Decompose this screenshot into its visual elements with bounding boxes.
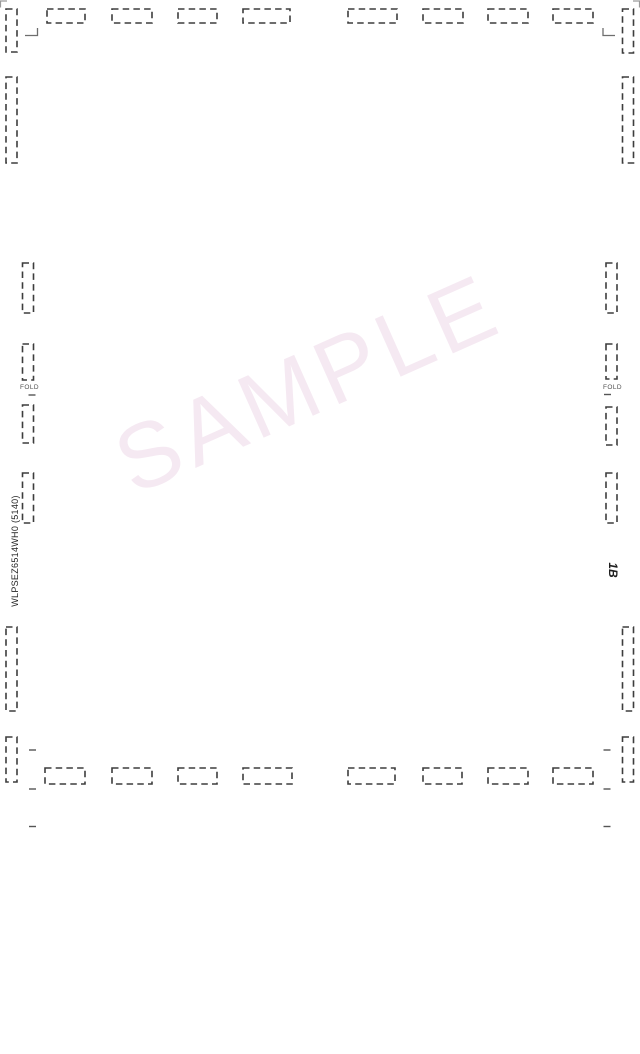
die-cut-mark [623, 627, 634, 711]
die-cut-mark [6, 9, 17, 52]
die-cut-mark [23, 405, 34, 443]
die-cut-mark [178, 768, 217, 784]
die-cut-mark [606, 263, 617, 313]
dieline-marks-layer [0, 0, 640, 1054]
fold-label-left: FOLD [20, 385, 39, 392]
die-cut-mark [112, 768, 152, 784]
die-cut-mark [178, 9, 217, 23]
corner-mark [25, 28, 38, 36]
die-cut-mark [488, 9, 528, 23]
die-cut-mark [243, 768, 292, 784]
die-cut-mark [606, 407, 617, 445]
die-cut-mark [623, 737, 634, 782]
die-cut-mark [243, 9, 290, 23]
die-cut-mark [623, 9, 634, 53]
die-cut-mark [23, 473, 34, 523]
die-cut-mark [348, 768, 395, 784]
die-cut-mark [23, 344, 34, 380]
die-cut-mark [488, 768, 528, 784]
die-cut-mark [423, 9, 463, 23]
die-cut-mark [112, 9, 152, 23]
die-cut-mark [606, 344, 617, 379]
die-cut-mark [553, 9, 593, 23]
sheet-code-label: 1B [606, 562, 620, 577]
die-cut-mark [23, 263, 34, 313]
die-cut-mark [553, 768, 593, 784]
die-cut-mark [606, 473, 617, 523]
die-cut-mark [45, 768, 85, 784]
die-cut-mark [623, 77, 634, 163]
fold-label-right: FOLD [603, 385, 622, 392]
die-cut-mark [47, 9, 85, 23]
die-cut-mark [6, 627, 17, 711]
die-cut-mark [6, 77, 17, 163]
die-cut-mark [423, 768, 462, 784]
die-cut-mark [6, 737, 17, 782]
die-line-proof-sheet: SAMPLE WLPSEZ6514WH0 (5140) 1B FOLD FOLD [0, 0, 640, 1054]
part-number-label: WLPSEZ6514WH0 (5140) [10, 495, 20, 607]
die-cut-mark [348, 9, 397, 23]
edge-crop-mark [633, 1, 640, 8]
edge-crop-mark [1, 1, 8, 8]
corner-mark [603, 28, 615, 36]
